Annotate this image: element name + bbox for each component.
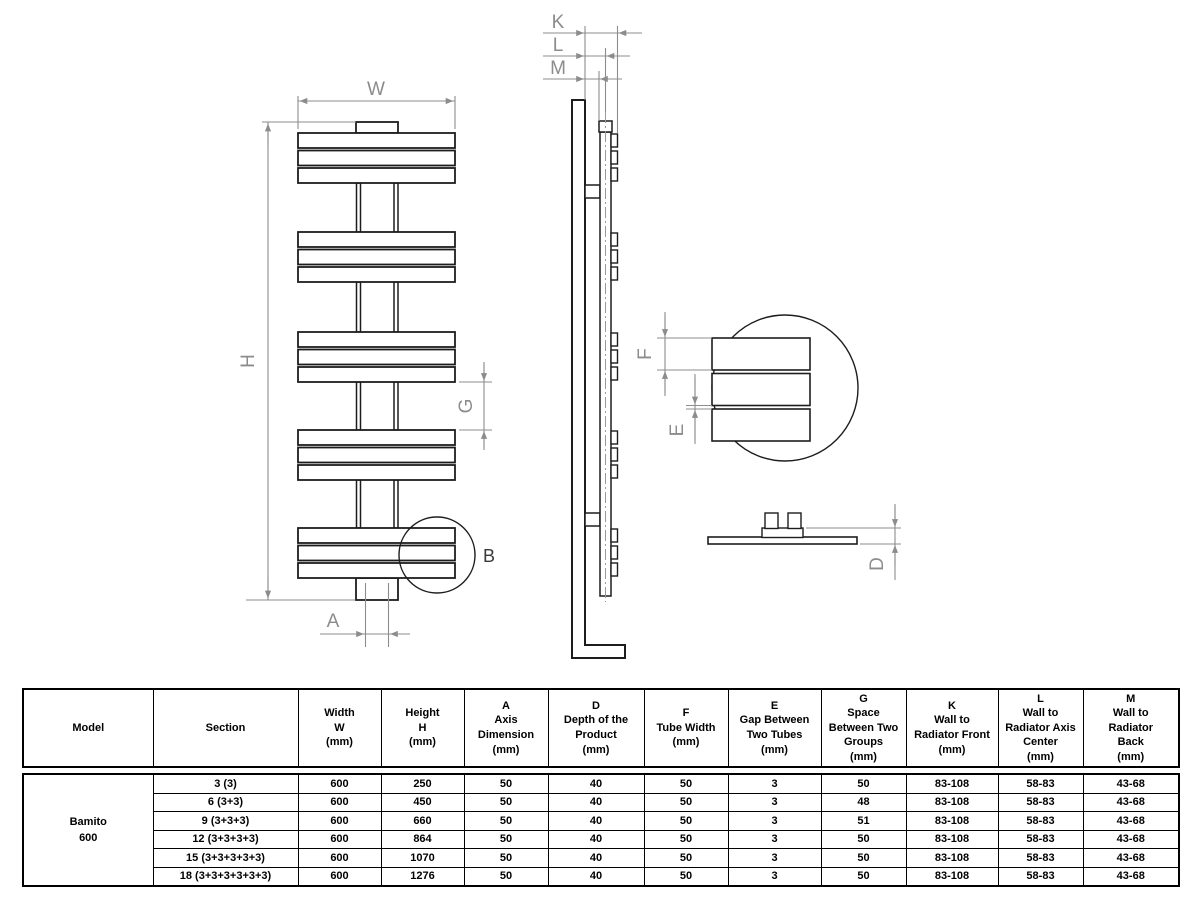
table-row: 12 (3+3+3+3) 600 864 50 40 50 3 50 83-10…: [23, 830, 1179, 849]
cell-height: 864: [381, 830, 464, 849]
cell-wall-back: 43-68: [1083, 812, 1179, 831]
technical-drawing: W H G A B: [0, 0, 1200, 682]
cell-tube-width: 50: [644, 812, 728, 831]
table-row: Bamito 600 3 (3) 600 250 50 40 50 3 50 8…: [23, 774, 1179, 793]
cell-tube-width: 50: [644, 793, 728, 812]
header-group-space: G Space Between Two Groups (mm): [821, 689, 906, 767]
cell-group-space: 51: [821, 812, 906, 831]
cell-tube-gap: 3: [728, 830, 821, 849]
cell-wall-front: 83-108: [906, 774, 998, 793]
dim-label-f: F: [635, 348, 656, 360]
cell-axis: 50: [464, 774, 548, 793]
cell-tube-width: 50: [644, 830, 728, 849]
cell-section: 18 (3+3+3+3+3+3): [153, 867, 298, 886]
cell-height: 1276: [381, 867, 464, 886]
cell-height: 1070: [381, 849, 464, 868]
side-view: [572, 100, 625, 658]
cell-section: 6 (3+3): [153, 793, 298, 812]
table-row: 18 (3+3+3+3+3+3) 600 1276 50 40 50 3 50 …: [23, 867, 1179, 886]
header-section: Section: [153, 689, 298, 767]
cell-height: 450: [381, 793, 464, 812]
cell-wall-front: 83-108: [906, 849, 998, 868]
model-cell: Bamito 600: [23, 774, 153, 886]
detail-label-b: B: [483, 546, 495, 566]
header-depth: D Depth of the Product (mm): [548, 689, 644, 767]
cell-wall-back: 43-68: [1083, 849, 1179, 868]
wall-bracket: [585, 185, 600, 198]
cell-width: 600: [298, 849, 381, 868]
cell-width: 600: [298, 830, 381, 849]
spec-table: Model Section Width W (mm) Height H (mm)…: [22, 688, 1178, 887]
cell-wall-axis: 58-83: [998, 774, 1083, 793]
cell-depth: 40: [548, 793, 644, 812]
front-view: [298, 122, 455, 600]
cell-wall-front: 83-108: [906, 830, 998, 849]
cell-group-space: 48: [821, 793, 906, 812]
tube-group-1: [298, 133, 455, 183]
cell-wall-front: 83-108: [906, 812, 998, 831]
table-row: 6 (3+3) 600 450 50 40 50 3 48 83-108 58-…: [23, 793, 1179, 812]
cell-wall-axis: 58-83: [998, 812, 1083, 831]
cell-section: 9 (3+3+3): [153, 812, 298, 831]
cell-group-space: 50: [821, 867, 906, 886]
header-wall-axis: L Wall to Radiator Axis Center (mm): [998, 689, 1083, 767]
header-model: Model: [23, 689, 153, 767]
header-height: Height H (mm): [381, 689, 464, 767]
table-row: 15 (3+3+3+3+3) 600 1070 50 40 50 3 50 83…: [23, 849, 1179, 868]
cell-wall-axis: 58-83: [998, 849, 1083, 868]
cell-tube-width: 50: [644, 774, 728, 793]
cell-axis: 50: [464, 812, 548, 831]
cell-wall-axis: 58-83: [998, 867, 1083, 886]
cell-tube-width: 50: [644, 849, 728, 868]
cell-group-space: 50: [821, 830, 906, 849]
cell-width: 600: [298, 774, 381, 793]
cell-width: 600: [298, 867, 381, 886]
cell-tube-gap: 3: [728, 793, 821, 812]
spec-table-body: Bamito 600 3 (3) 600 250 50 40 50 3 50 8…: [22, 773, 1180, 887]
top-view-pipe-connector: [788, 513, 801, 529]
tube-group-5: [298, 528, 455, 578]
cell-tube-width: 50: [644, 867, 728, 886]
header-axis: A Axis Dimension (mm): [464, 689, 548, 767]
table-row: 9 (3+3+3) 600 660 50 40 50 3 51 83-108 5…: [23, 812, 1179, 831]
top-view-pipe-connector: [765, 513, 778, 529]
tube-group-3: [298, 332, 455, 382]
dim-label-d: D: [867, 557, 888, 571]
cell-depth: 40: [548, 774, 644, 793]
cell-wall-front: 83-108: [906, 793, 998, 812]
spec-table-header: Model Section Width W (mm) Height H (mm)…: [22, 688, 1180, 768]
header-wall-front: K Wall to Radiator Front (mm): [906, 689, 998, 767]
cell-wall-back: 43-68: [1083, 830, 1179, 849]
header-tube-width: F Tube Width (mm): [644, 689, 728, 767]
cell-height: 250: [381, 774, 464, 793]
cell-section: 15 (3+3+3+3+3): [153, 849, 298, 868]
cell-tube-gap: 3: [728, 849, 821, 868]
cell-group-space: 50: [821, 849, 906, 868]
header-wall-back: M Wall to Radiator Back (mm): [1083, 689, 1179, 767]
cell-axis: 50: [464, 849, 548, 868]
wall-bracket: [585, 513, 600, 526]
cell-wall-axis: 58-83: [998, 793, 1083, 812]
bottom-connection-stub: [356, 578, 398, 600]
dim-label-g: G: [456, 399, 477, 414]
cell-wall-back: 43-68: [1083, 793, 1179, 812]
cell-depth: 40: [548, 812, 644, 831]
cell-wall-back: 43-68: [1083, 774, 1179, 793]
dim-label-l: L: [553, 35, 564, 56]
cell-wall-back: 43-68: [1083, 867, 1179, 886]
detail-view-b: F E: [635, 312, 858, 461]
cell-axis: 50: [464, 867, 548, 886]
cell-axis: 50: [464, 793, 548, 812]
cell-height: 660: [381, 812, 464, 831]
dim-label-a: A: [327, 611, 340, 632]
dim-label-h: H: [238, 354, 259, 368]
header-row: Model Section Width W (mm) Height H (mm)…: [23, 689, 1179, 767]
tube-group-4: [298, 430, 455, 480]
dim-label-e: E: [667, 424, 688, 437]
header-tube-gap: E Gap Between Two Tubes (mm): [728, 689, 821, 767]
cell-tube-gap: 3: [728, 774, 821, 793]
cell-tube-gap: 3: [728, 867, 821, 886]
tube-group-2: [298, 232, 455, 282]
cell-section: 3 (3): [153, 774, 298, 793]
cell-depth: 40: [548, 867, 644, 886]
cell-width: 600: [298, 812, 381, 831]
dim-label-m: M: [550, 58, 566, 79]
detail-tubes: [712, 338, 810, 441]
top-view-hub: [762, 528, 803, 538]
cell-wall-axis: 58-83: [998, 830, 1083, 849]
cell-axis: 50: [464, 830, 548, 849]
radiator-spec-sheet: W H G A B: [0, 0, 1200, 900]
dim-label-k: K: [552, 12, 565, 33]
header-width: Width W (mm): [298, 689, 381, 767]
cell-tube-gap: 3: [728, 812, 821, 831]
cell-depth: 40: [548, 830, 644, 849]
cell-width: 600: [298, 793, 381, 812]
cell-wall-front: 83-108: [906, 867, 998, 886]
cell-depth: 40: [548, 849, 644, 868]
tube-end-tabs: [611, 134, 618, 576]
dim-label-w: W: [367, 79, 385, 100]
cell-group-space: 50: [821, 774, 906, 793]
top-connection-tab: [356, 122, 398, 133]
cell-section: 12 (3+3+3+3): [153, 830, 298, 849]
